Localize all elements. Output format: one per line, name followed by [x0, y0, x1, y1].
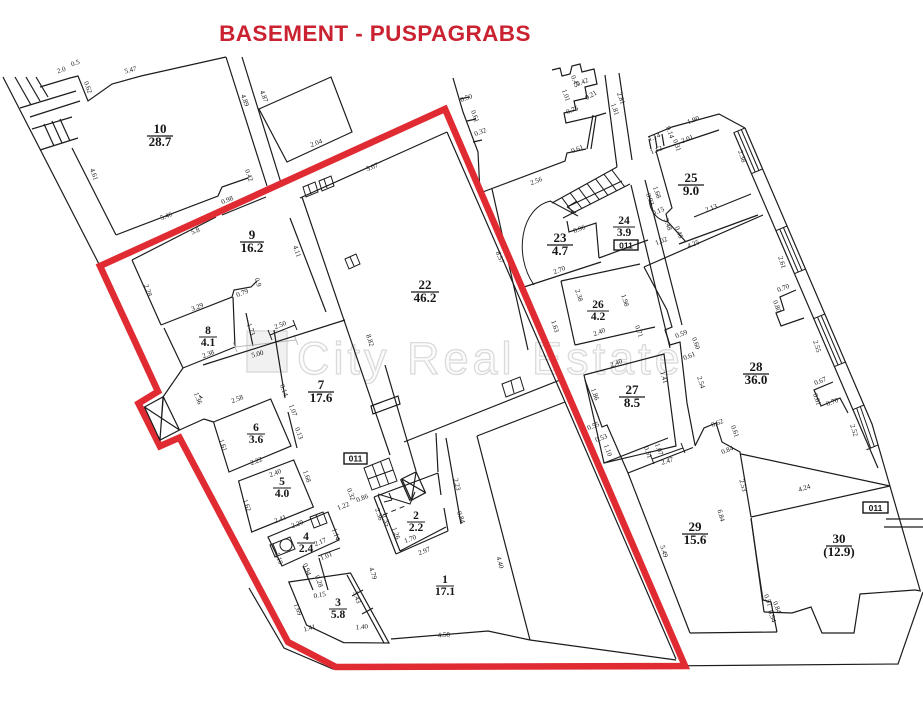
svg-text:2.4: 2.4: [299, 543, 314, 555]
svg-text:9.0: 9.0: [683, 183, 699, 198]
svg-text:011: 011: [869, 503, 883, 513]
svg-text:4.1: 4.1: [201, 337, 216, 349]
svg-text:011: 011: [619, 241, 633, 251]
svg-text:1.40: 1.40: [355, 622, 368, 631]
svg-text:1: 1: [442, 574, 448, 586]
svg-text:4.58: 4.58: [437, 631, 450, 640]
svg-text:2.2: 2.2: [409, 522, 424, 534]
svg-text:46.2: 46.2: [414, 290, 437, 305]
svg-text:16.2: 16.2: [241, 240, 264, 255]
svg-text:011: 011: [349, 454, 363, 464]
svg-text:4.2: 4.2: [591, 311, 606, 323]
svg-text:17.6: 17.6: [310, 390, 333, 405]
svg-text:3.6: 3.6: [249, 434, 264, 446]
svg-text:City Real Estate: City Real Estate: [297, 333, 684, 384]
svg-text:4.0: 4.0: [275, 488, 290, 500]
svg-text:24: 24: [618, 215, 630, 227]
svg-text:5.8: 5.8: [331, 609, 346, 621]
svg-text:36.0: 36.0: [745, 372, 768, 387]
svg-text:2: 2: [413, 510, 419, 522]
svg-text:4.7: 4.7: [552, 243, 569, 258]
svg-text:15.6: 15.6: [684, 532, 707, 547]
svg-text:3: 3: [335, 597, 341, 609]
svg-text:8.5: 8.5: [624, 395, 641, 410]
svg-text:17.1: 17.1: [435, 586, 455, 598]
svg-text:5: 5: [279, 476, 285, 488]
svg-text:6: 6: [253, 422, 259, 434]
svg-text:(12.9): (12.9): [823, 544, 854, 559]
svg-text:BASEMENT - PUSPAGRABS: BASEMENT - PUSPAGRABS: [219, 21, 531, 46]
svg-text:26: 26: [592, 299, 604, 311]
svg-text:28.7: 28.7: [149, 134, 172, 149]
svg-text:4: 4: [303, 531, 309, 543]
svg-text:3.9: 3.9: [617, 227, 632, 239]
svg-text:8: 8: [205, 325, 211, 337]
